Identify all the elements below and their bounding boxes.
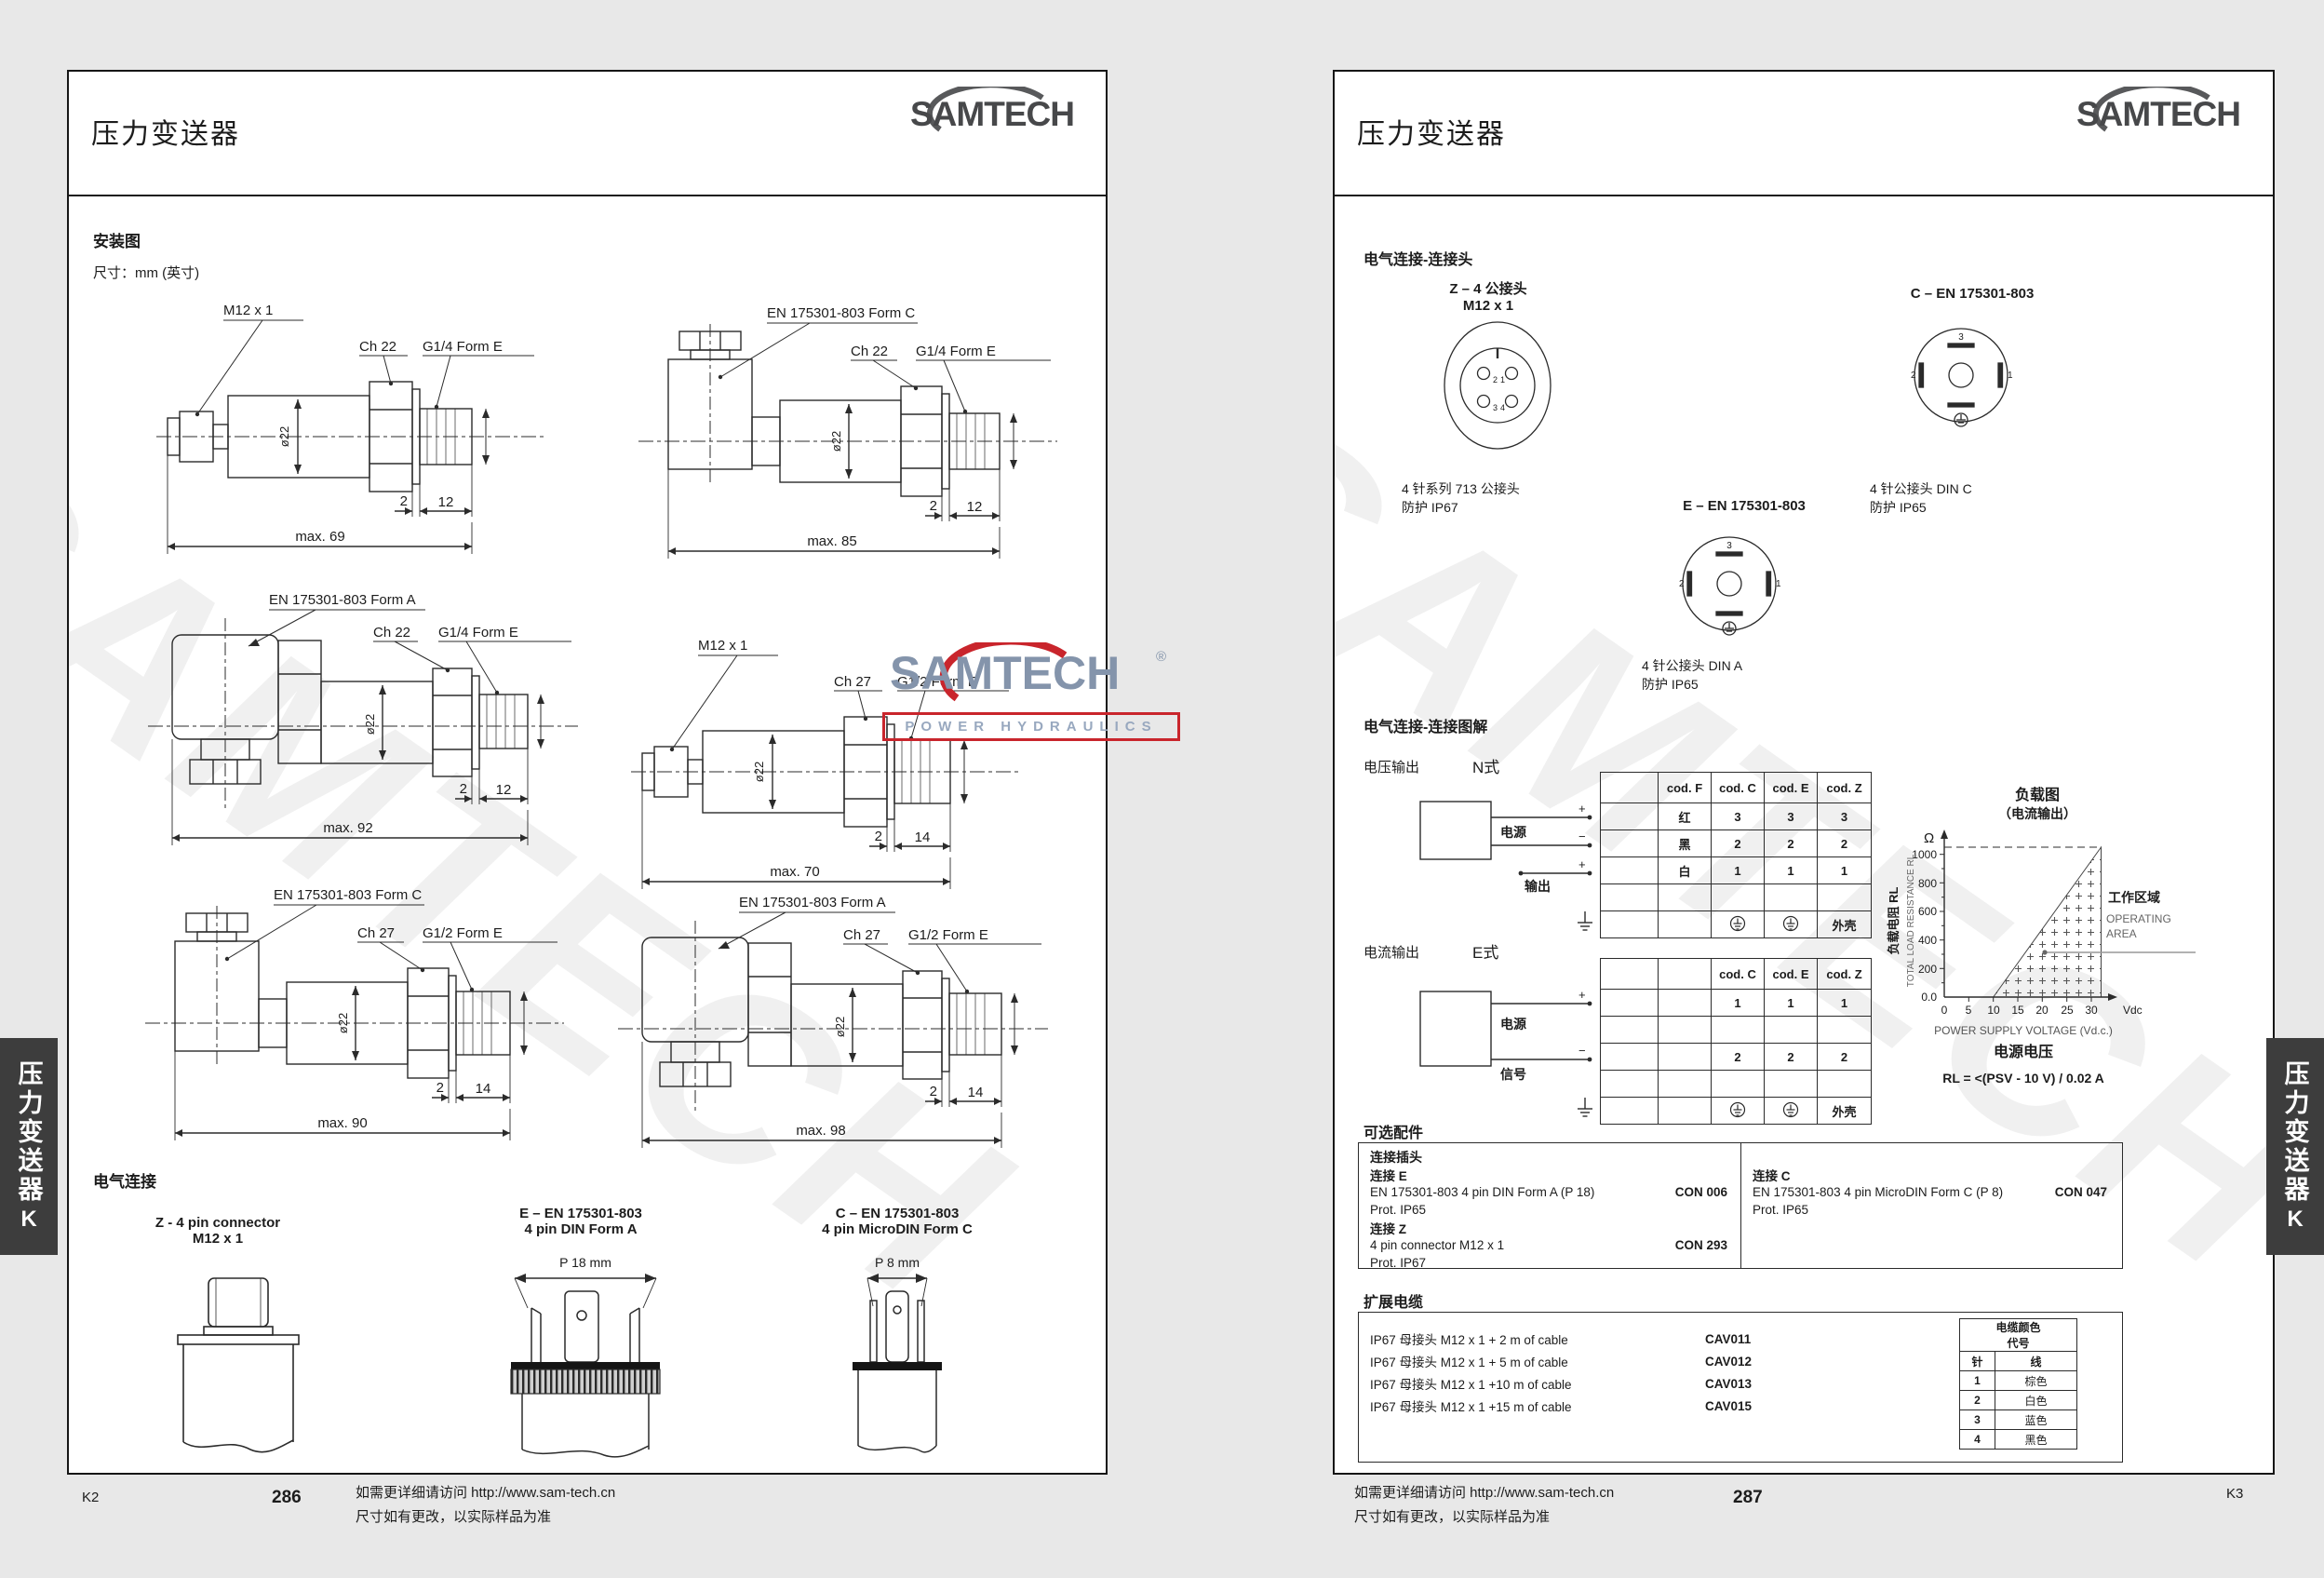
cell: 2 xyxy=(1712,1044,1765,1071)
dim-max: max. 92 xyxy=(323,820,372,836)
dim-b: 12 xyxy=(438,494,454,510)
hex-label: Ch 22 xyxy=(359,339,396,355)
cable-code: CAV012 xyxy=(1705,1355,1752,1369)
connector-label: EN 175301-803 Form C xyxy=(767,305,915,321)
section-cables-title: 扩展电缆 xyxy=(1364,1289,1423,1312)
current-wiring-diagram: + − 电源 信号 xyxy=(1407,958,1598,1129)
cell: 1 xyxy=(1712,857,1765,884)
cell: 红 xyxy=(1659,803,1712,830)
earth-icon xyxy=(1782,915,1799,932)
cable-row: IP67 母接头 M12 x 1 +15 m of cable CAV015 xyxy=(1370,1395,1835,1417)
brand-reg: ® xyxy=(1156,649,1166,665)
cell: 白色 xyxy=(1995,1391,2077,1410)
samtech-logo: SAMTECH xyxy=(907,87,1088,138)
voltage-wiring-diagram: + − + 电源 输出 xyxy=(1407,772,1598,943)
x-tick: 20 xyxy=(2035,1004,2049,1017)
cell: 3 xyxy=(1818,803,1872,830)
cell: 线 xyxy=(1995,1352,2077,1371)
cell: 1 xyxy=(1765,990,1818,1017)
hex-label: Ch 22 xyxy=(851,344,888,359)
cell xyxy=(1601,1044,1659,1071)
cell xyxy=(1601,830,1659,857)
acc-e-name: 连接 E xyxy=(1370,1166,1740,1183)
section-electrical-title: 电气连接 xyxy=(93,1168,156,1192)
pin-3-label: 3 xyxy=(1958,332,1964,343)
connector-z-title: Z - 4 pin connector M12 x 1 xyxy=(106,1215,329,1247)
cable-code: CAV013 xyxy=(1705,1377,1752,1391)
cable-desc: IP67 母接头 M12 x 1 + 5 m of cable xyxy=(1370,1352,1705,1370)
pin-1-label: 1 xyxy=(2008,371,2013,381)
dim-a: 2 xyxy=(460,781,467,797)
hex-label: Ch 27 xyxy=(834,674,871,690)
dim-b: 12 xyxy=(967,499,983,515)
wire-plus-symbol: + xyxy=(1578,857,1586,871)
plug-section-title: 连接插头 xyxy=(1370,1148,1740,1166)
x-tick: 10 xyxy=(1987,1004,2000,1017)
cable-desc: IP67 母接头 M12 x 1 +10 m of cable xyxy=(1370,1374,1705,1393)
connector-c-pictogram: P 8 mm xyxy=(804,1252,990,1466)
side-tab-label: 压力变送器 xyxy=(2277,1060,2314,1205)
y-tick: 600 xyxy=(1918,905,1937,918)
port-label: G1/2 Form E xyxy=(908,927,988,943)
cell xyxy=(1601,911,1659,938)
cell: 针 xyxy=(1960,1352,1995,1371)
acc-z-desc: 4 pin connector M12 x 1 xyxy=(1370,1238,1504,1252)
cell xyxy=(1601,990,1659,1017)
cell xyxy=(1818,884,1872,911)
cell xyxy=(1712,1071,1765,1098)
cable-row: IP67 母接头 M12 x 1 + 5 m of cable CAV012 xyxy=(1370,1350,1835,1372)
dim-max: max. 70 xyxy=(770,864,819,880)
cable-rows: IP67 母接头 M12 x 1 + 2 m of cable CAV011 I… xyxy=(1370,1328,1835,1417)
cell xyxy=(1601,773,1659,803)
section-accessories-title: 可选配件 xyxy=(1364,1120,1423,1142)
cable-desc: IP67 母接头 M12 x 1 + 2 m of cable xyxy=(1370,1329,1705,1348)
output-label: 输出 xyxy=(1525,879,1551,894)
dim-a: 2 xyxy=(930,1084,937,1099)
cell: 外壳 xyxy=(1818,911,1872,938)
corner-code-left: K2 xyxy=(82,1490,99,1505)
cell: 4 xyxy=(1960,1430,1995,1450)
wire-plus-symbol: + xyxy=(1578,802,1586,816)
acc-c-prot: Prot. IP65 xyxy=(1753,1201,2120,1219)
ohm-unit: Ω xyxy=(1924,830,1934,846)
cell: 1 xyxy=(1818,990,1872,1017)
x-tick: 25 xyxy=(2061,1004,2074,1017)
dim-b: 14 xyxy=(476,1081,491,1097)
diameter-label: ø22 xyxy=(833,1017,847,1037)
power-label: 电源 xyxy=(1500,825,1526,840)
side-tab-label: 压力变送器 xyxy=(11,1060,47,1205)
x-tick: 0 xyxy=(1941,1004,1948,1017)
pin-2-label: 2 xyxy=(1493,375,1498,384)
cell: 2 xyxy=(1765,830,1818,857)
cell: 2 xyxy=(1818,830,1872,857)
connector-c-title: C – EN 175301-803 4 pin MicroDIN Form C xyxy=(767,1206,1028,1237)
cell: 1 xyxy=(1960,1371,1995,1391)
svg-text:SAMTECH: SAMTECH xyxy=(910,95,1074,133)
wire-plus-symbol: + xyxy=(1578,988,1586,1002)
connector-label: EN 175301-803 Form C xyxy=(274,887,422,903)
cell xyxy=(1601,1098,1659,1125)
cable-color-table: 电缆颜色 代号 针 线 1 棕色 2 白色 3 蓝色 4 黑色 xyxy=(1959,1318,2077,1450)
pin-1-label: 1 xyxy=(1776,579,1781,589)
cell xyxy=(1601,803,1659,830)
acc-z-name: 连接 Z xyxy=(1370,1219,1740,1236)
cell xyxy=(1818,1071,1872,1098)
cell: 黑色 xyxy=(1995,1430,2077,1450)
chart-subtitle: （电流输出） xyxy=(1998,806,2076,821)
port-label: G1/2 Form E xyxy=(423,925,503,941)
footer-note1-left: 如需更详细请访问 http://www.sam-tech.cn xyxy=(356,1482,615,1502)
wire-minus-symbol: − xyxy=(1578,1044,1586,1058)
drawing-transmitter-forma-g14: EN 175301-803 Form A Ch 22 G1/4 Form E ø… xyxy=(139,588,585,877)
pinout-z-caption: 4 针系列 713 公接头 防护 IP67 xyxy=(1402,479,1520,517)
cable-row: IP67 母接头 M12 x 1 + 2 m of cable CAV011 xyxy=(1370,1328,1835,1350)
cell: 黑 xyxy=(1659,830,1712,857)
cell: cod. E xyxy=(1765,959,1818,990)
pinout-e-caption: 4 针公接头 DIN A 防护 IP65 xyxy=(1642,656,1742,694)
load-chart: 负载图 （电流输出） Ω 1000 800 600 400 200 0.0 0 … xyxy=(1879,781,2200,1098)
acc-c-desc: EN 175301-803 4 pin MicroDIN Form C (P 8… xyxy=(1753,1185,2003,1199)
cell xyxy=(1601,857,1659,884)
pinout-z-title: Z – 4 公接头 M12 x 1 xyxy=(1400,278,1577,314)
operating-area-en1: OPERATING xyxy=(2106,912,2171,925)
earth-icon xyxy=(1729,1101,1746,1118)
y-label-en: TOTAL LOAD RESISTANCE RL xyxy=(1906,854,1916,987)
x-unit: Vdc xyxy=(2123,1004,2143,1017)
drawing-transmitter-formc-g14: EN 175301-803 Form C Ch 22 G1/4 Form E ø… xyxy=(627,300,1065,579)
section-wiring-title: 电气连接-连接图解 xyxy=(1364,714,1487,736)
cell xyxy=(1712,911,1765,938)
accessories-left-cell: 连接插头 连接 E EN 175301-803 4 pin DIN Form A… xyxy=(1359,1143,1740,1268)
page-title: 压力变送器 xyxy=(91,111,240,152)
dim-max: max. 90 xyxy=(317,1115,367,1131)
dim-a: 2 xyxy=(400,493,408,509)
cell xyxy=(1659,990,1712,1017)
connector-label: EN 175301-803 Form A xyxy=(739,895,886,910)
cell: cod. Z xyxy=(1818,959,1872,990)
cable-row: IP67 母接头 M12 x 1 +10 m of cable CAV013 xyxy=(1370,1372,1835,1395)
x-label-zh: 电源电压 xyxy=(1994,1043,2053,1060)
cell: 3 xyxy=(1765,803,1818,830)
cell xyxy=(1659,911,1712,938)
cell xyxy=(1712,1098,1765,1125)
y-label-zh: 负载电阻 RL xyxy=(1887,886,1901,954)
hex-label: Ch 27 xyxy=(357,925,395,941)
acc-e-row: EN 175301-803 4 pin DIN Form A (P 18) CO… xyxy=(1370,1183,1740,1201)
x-label-en: POWER SUPPLY VOLTAGE (Vd.c.) xyxy=(1934,1024,2113,1037)
connector-label: M12 x 1 xyxy=(698,638,747,654)
cell: 2 xyxy=(1765,1044,1818,1071)
spacer xyxy=(1753,1148,2120,1166)
cell xyxy=(1659,1044,1712,1071)
brand-tagline: POWER HYDRAULICS xyxy=(882,712,1180,741)
cell: cod. Z xyxy=(1818,773,1872,803)
section-connectors-title: 电气连接-连接头 xyxy=(1364,247,1472,269)
chart-title: 负载图 xyxy=(2015,786,2060,803)
dim-a: 2 xyxy=(875,829,882,844)
side-tab-letter: K xyxy=(20,1207,36,1233)
cell xyxy=(1659,1017,1712,1044)
earth-icon xyxy=(1729,915,1746,932)
cell xyxy=(1659,959,1712,990)
y-tick: 400 xyxy=(1918,934,1937,947)
cell xyxy=(1765,884,1818,911)
cell xyxy=(1659,884,1712,911)
dimension-unit-note: 尺寸：mm (英寸) xyxy=(93,263,199,282)
side-tab-left: 压力变送器 K xyxy=(0,1038,58,1255)
pinout-c-title: C – EN 175301-803 xyxy=(1851,286,2093,302)
pin-3-label: 3 xyxy=(1726,541,1732,551)
cell: 3 xyxy=(1712,803,1765,830)
pin-spacing-label: P 8 mm xyxy=(875,1255,920,1270)
cable-color-header: 电缆颜色 代号 xyxy=(1960,1319,2077,1352)
connector-label: M12 x 1 xyxy=(223,303,273,318)
cell: 棕色 xyxy=(1995,1371,2077,1391)
x-tick: 15 xyxy=(2011,1004,2024,1017)
drawing-transmitter-formc-g12: EN 175301-803 Form C Ch 27 G1/2 Form E ø… xyxy=(134,882,571,1161)
dim-b: 14 xyxy=(915,829,931,845)
earth-icon xyxy=(1782,1101,1799,1118)
diameter-label: ø22 xyxy=(336,1013,350,1033)
operating-area-en2: AREA xyxy=(2106,927,2137,940)
acc-e-desc: EN 175301-803 4 pin DIN Form A (P 18) xyxy=(1370,1185,1594,1199)
x-tick: 30 xyxy=(2085,1004,2098,1017)
samtech-logo: SAMTECH xyxy=(2073,87,2254,138)
pin-3-label: 3 xyxy=(1493,403,1498,412)
dim-a: 2 xyxy=(930,498,937,514)
cable-code: CAV015 xyxy=(1705,1399,1752,1413)
cable-color-title1: 电缆颜色 xyxy=(1960,1319,2076,1335)
samtech-watermark-logo: SAMTECH ® xyxy=(882,642,1180,704)
cell: 蓝色 xyxy=(1995,1410,2077,1430)
dim-a: 2 xyxy=(437,1080,444,1096)
dim-max: max. 98 xyxy=(796,1123,845,1139)
accessories-table: 连接插头 连接 E EN 175301-803 4 pin DIN Form A… xyxy=(1358,1142,2123,1269)
port-label: G1/4 Form E xyxy=(916,344,996,359)
cell xyxy=(1765,911,1818,938)
acc-z-code: CON 293 xyxy=(1675,1238,1740,1252)
acc-c-row: EN 175301-803 4 pin MicroDIN Form C (P 8… xyxy=(1753,1183,2120,1201)
y-tick: 800 xyxy=(1918,877,1937,890)
pinout-z-diagram: 2 1 3 4 xyxy=(1437,316,1558,455)
cable-color-title2: 代号 xyxy=(1960,1335,2076,1351)
footer-note2-left: 尺寸如有更改，以实际样品为准 xyxy=(356,1506,551,1526)
cable-desc: IP67 母接头 M12 x 1 +15 m of cable xyxy=(1370,1396,1705,1415)
acc-z-row: 4 pin connector M12 x 1 CON 293 xyxy=(1370,1236,1740,1254)
hex-label: Ch 27 xyxy=(843,927,880,943)
page-number-left: 286 xyxy=(272,1488,302,1508)
diameter-label: ø22 xyxy=(752,762,766,782)
connector-label: EN 175301-803 Form A xyxy=(269,592,416,608)
cell xyxy=(1601,1017,1659,1044)
hex-label: Ch 22 xyxy=(373,625,410,641)
acc-e-code: CON 006 xyxy=(1675,1185,1740,1199)
cell: cod. E xyxy=(1765,773,1818,803)
cell: cod. C xyxy=(1712,959,1765,990)
pinout-c-caption: 4 针公接头 DIN C 防护 IP65 xyxy=(1870,479,1972,517)
cell: 外壳 xyxy=(1818,1098,1872,1125)
cell xyxy=(1765,1098,1818,1125)
pin-1-label: 1 xyxy=(1500,375,1505,384)
cable-code: CAV011 xyxy=(1705,1332,1751,1346)
pinout-e-diagram: 3 1 2 xyxy=(1675,524,1787,651)
section-mounting-title: 安装图 xyxy=(93,228,141,251)
dim-b: 14 xyxy=(968,1085,984,1100)
dim-b: 12 xyxy=(496,782,512,798)
cell xyxy=(1765,1071,1818,1098)
y-tick: 0.0 xyxy=(1921,991,1937,1004)
wire-minus-symbol: − xyxy=(1578,829,1586,843)
cell: 2 xyxy=(1818,1044,1872,1071)
cell xyxy=(1712,884,1765,911)
drawing-transmitter-m12-g14: M12 x 1 Ch 22 G1/4 Form E ø22 2 12 max. … xyxy=(143,295,553,574)
cell: 1 xyxy=(1765,857,1818,884)
cell: cod. C xyxy=(1712,773,1765,803)
pinout-e-title: E – EN 175301-803 xyxy=(1623,498,1865,514)
corner-code-right: K3 xyxy=(2226,1486,2243,1502)
cables-table: IP67 母接头 M12 x 1 + 2 m of cable CAV011 I… xyxy=(1358,1312,2123,1463)
cell xyxy=(1818,1017,1872,1044)
brand-name: SAMTECH xyxy=(890,647,1120,699)
cell xyxy=(1712,1017,1765,1044)
footer-note1-right: 如需更详细请访问 http://www.sam-tech.cn xyxy=(1354,1482,1614,1502)
page-number-right: 287 xyxy=(1733,1488,1763,1508)
cell xyxy=(1601,959,1659,990)
y-tick: 200 xyxy=(1918,963,1937,976)
cell xyxy=(1601,1071,1659,1098)
pin-2-label: 2 xyxy=(1911,371,1916,381)
catalog-page-left: SAMTECH 压力变送器 SAMTECH 安装图 尺寸：mm (英寸) xyxy=(67,70,1108,1475)
pin-4-label: 4 xyxy=(1500,403,1505,412)
port-label: G1/4 Form E xyxy=(423,339,503,355)
footer-note2-right: 尺寸如有更改，以实际样品为准 xyxy=(1354,1506,1550,1526)
cell: 白 xyxy=(1659,857,1712,884)
load-formula: RL = <(PSV - 10 V) / 0.02 A xyxy=(1942,1071,2104,1086)
pin-spacing-label: P 18 mm xyxy=(559,1255,611,1270)
voltage-pin-table: cod. F cod. C cod. E cod. Z 红 3 3 3 黑 2 … xyxy=(1600,772,1872,938)
dim-max: max. 85 xyxy=(807,533,856,549)
signal-label: 信号 xyxy=(1500,1067,1526,1082)
accessories-right-cell: 连接 C EN 175301-803 4 pin MicroDIN Form C… xyxy=(1740,1143,2120,1268)
side-tab-letter: K xyxy=(2287,1207,2303,1233)
acc-c-code: CON 047 xyxy=(2055,1185,2120,1199)
connector-e-pictogram: P 18 mm xyxy=(483,1252,688,1466)
cell xyxy=(1659,1098,1712,1125)
dim-max: max. 69 xyxy=(295,529,344,545)
drawing-transmitter-forma-g12: EN 175301-803 Form A Ch 27 G1/2 Form E ø… xyxy=(609,891,1055,1180)
current-pin-table: cod. C cod. E cod. Z 1 1 1 2 2 2 外壳 xyxy=(1600,958,1872,1125)
acc-e-prot: Prot. IP65 xyxy=(1370,1201,1740,1219)
cell: 2 xyxy=(1712,830,1765,857)
page-title: 压力变送器 xyxy=(1357,111,1506,152)
connector-e-title: E – EN 175301-803 4 pin DIN Form A xyxy=(460,1206,702,1237)
cell: 1 xyxy=(1818,857,1872,884)
pinout-c-diagram: 3 1 2 xyxy=(1907,316,2019,442)
svg-text:SAMTECH: SAMTECH xyxy=(2076,95,2240,133)
cell xyxy=(1601,884,1659,911)
cell: 2 xyxy=(1960,1391,1995,1410)
pin-2-label: 2 xyxy=(1679,579,1685,589)
power-label: 电源 xyxy=(1500,1017,1526,1032)
catalog-page-right: SAMTECH 压力变送器 SAMTECH 电气连接-连接头 Z – 4 公接头… xyxy=(1333,70,2275,1475)
x-tick: 5 xyxy=(1966,1004,1972,1017)
cell: 3 xyxy=(1960,1410,1995,1430)
diameter-label: ø22 xyxy=(829,431,843,452)
cell xyxy=(1659,1071,1712,1098)
connector-z-pictogram xyxy=(157,1273,325,1468)
cell xyxy=(1765,1017,1818,1044)
acc-c-name: 连接 C xyxy=(1753,1166,2120,1183)
page-header: 压力变送器 SAMTECH xyxy=(69,72,1106,196)
side-tab-right: 压力变送器 K xyxy=(2266,1038,2324,1255)
samtech-center-watermark: SAMTECH ® POWER HYDRAULICS xyxy=(882,642,1180,741)
page-header: 压力变送器 SAMTECH xyxy=(1335,72,2273,196)
acc-z-prot: Prot. IP67 xyxy=(1370,1254,1740,1272)
port-label: G1/4 Form E xyxy=(438,625,518,641)
diameter-label: ø22 xyxy=(363,714,377,735)
cell: cod. F xyxy=(1659,773,1712,803)
operating-area-zh: 工作区域 xyxy=(2108,890,2160,905)
diameter-label: ø22 xyxy=(277,426,291,447)
cell: 1 xyxy=(1712,990,1765,1017)
